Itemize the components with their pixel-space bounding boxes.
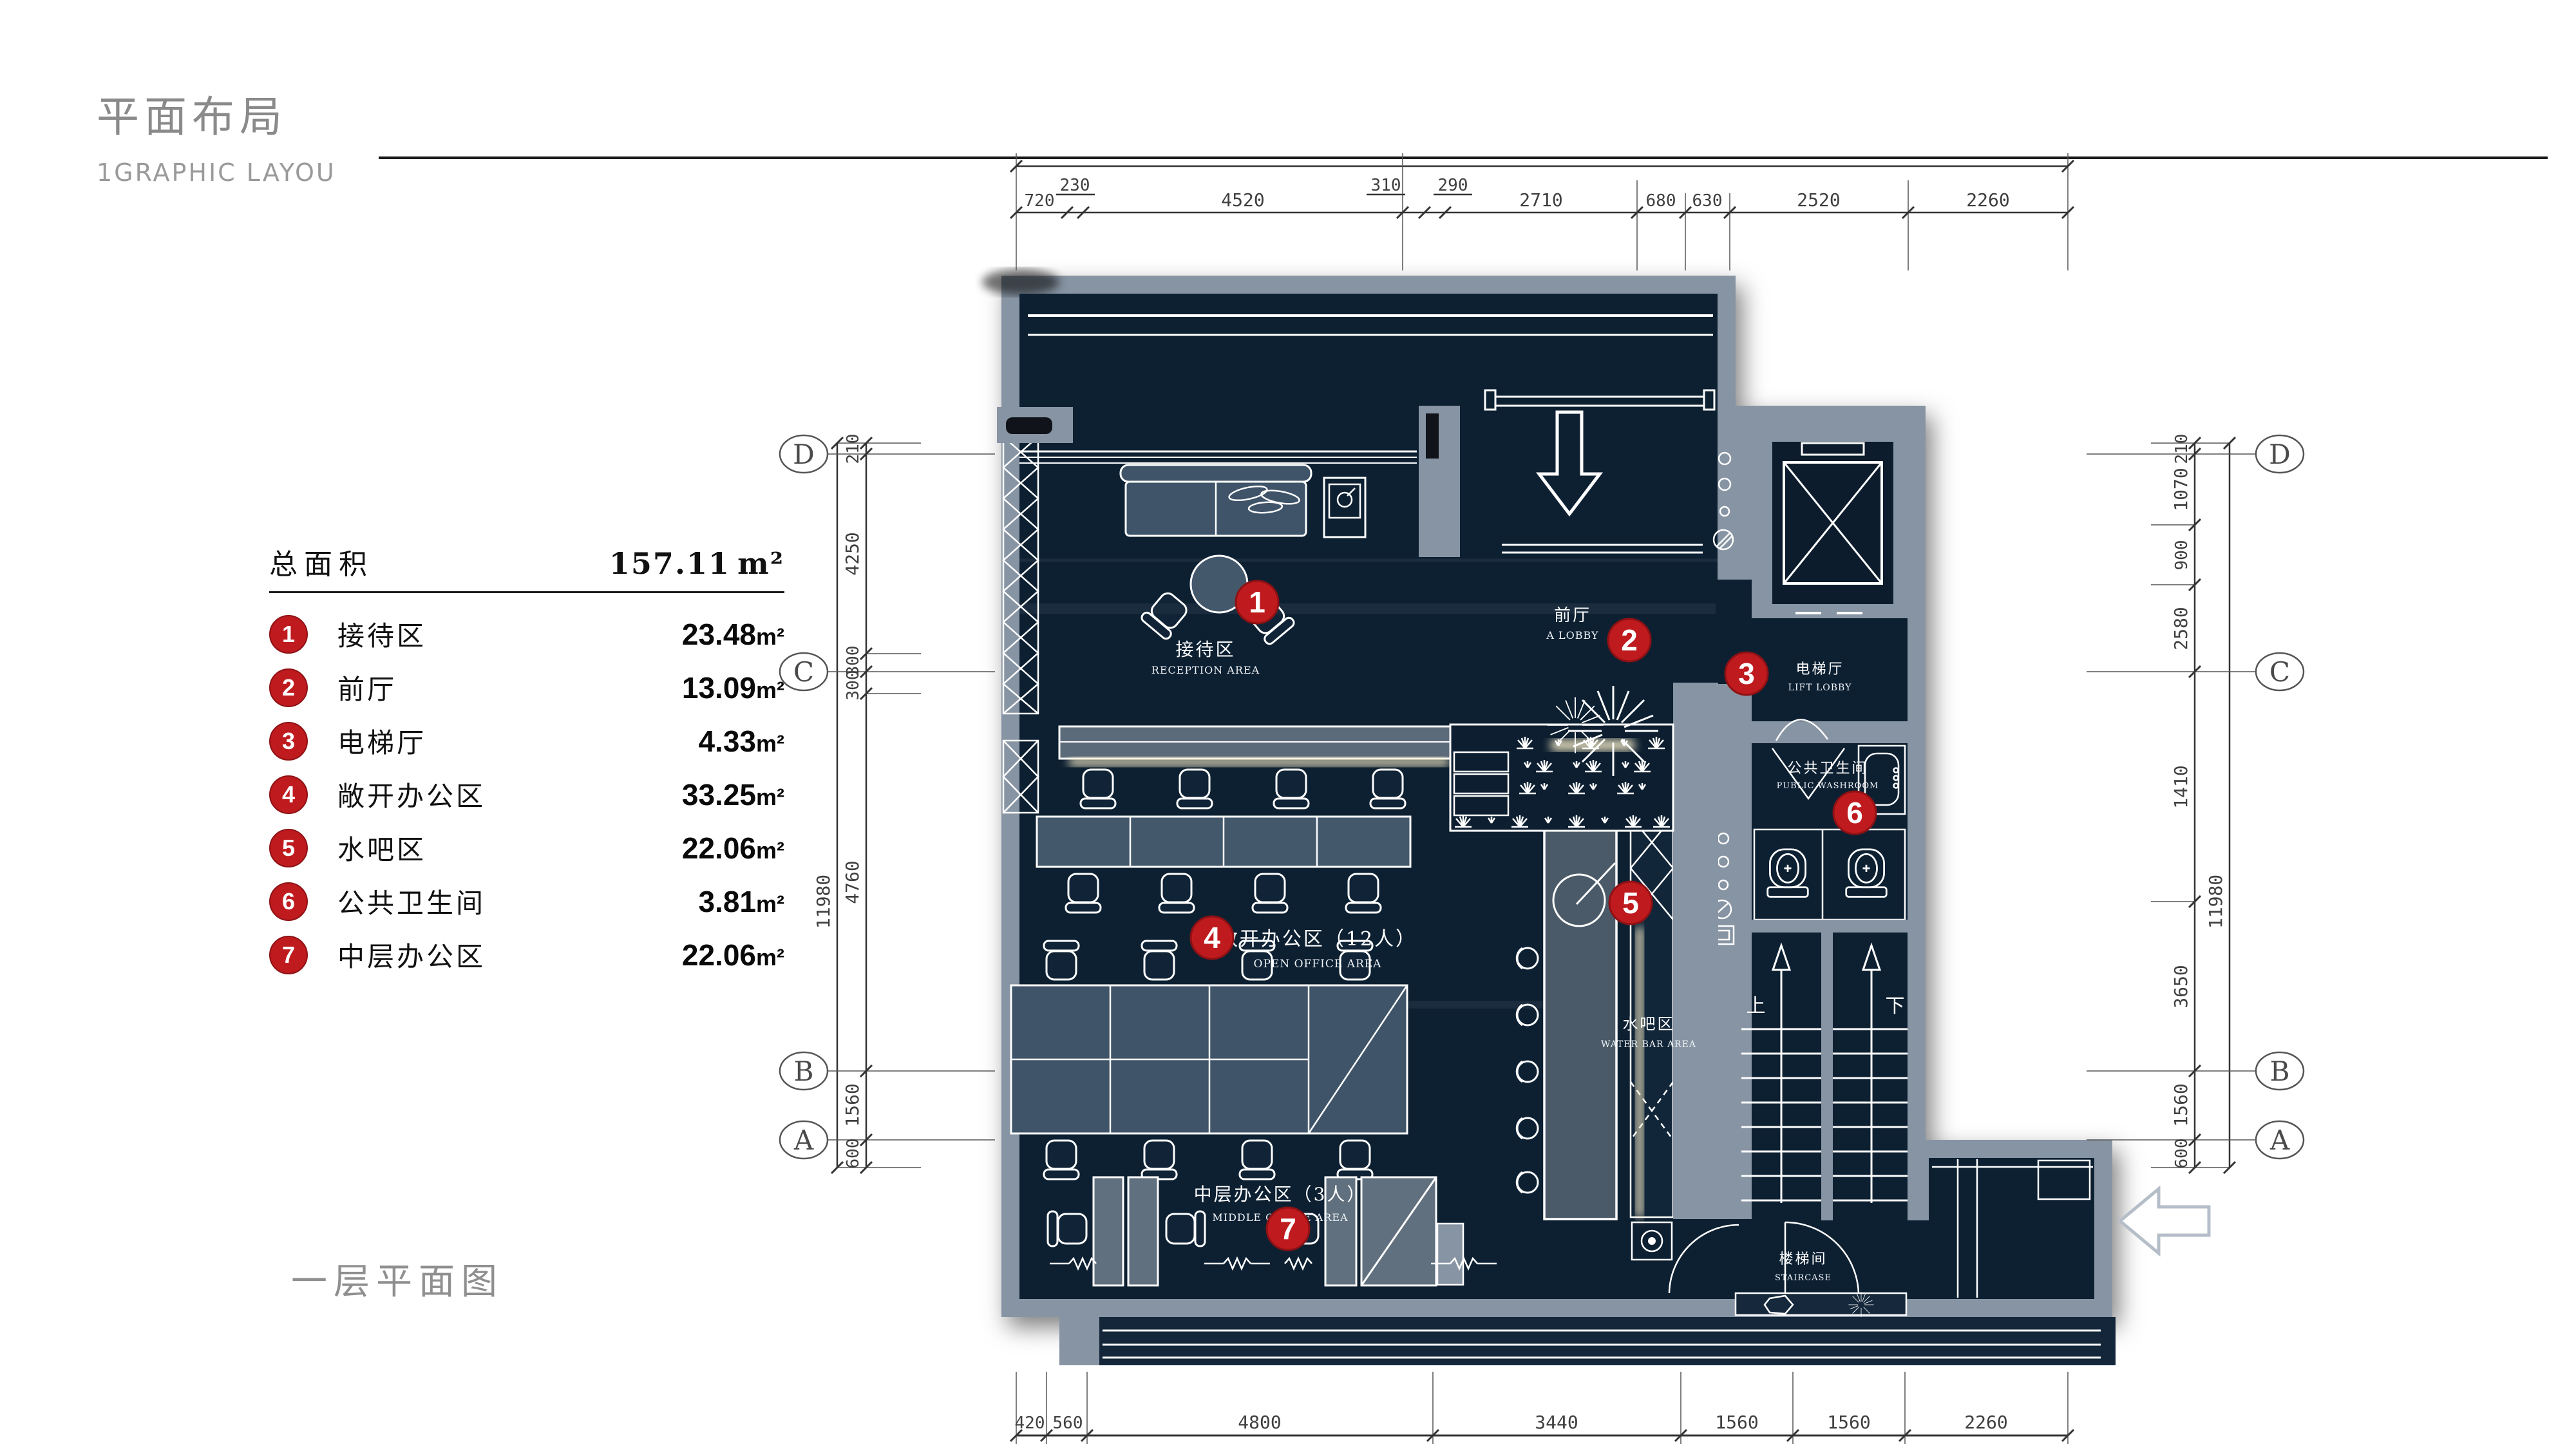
dim-bottom-4800: 4800 — [1238, 1412, 1281, 1433]
grid-left-D: D — [793, 439, 815, 470]
dim-bottom-3440: 3440 — [1535, 1412, 1578, 1433]
label-reception-zh: 接待区 — [1175, 639, 1235, 660]
stair-down-label: 下 — [1886, 995, 1907, 1018]
label-washroom-en: PUBLIC WASHROOM — [1777, 781, 1879, 791]
dim-left-4760: 4760 — [842, 860, 863, 904]
stair-up-label: 上 — [1747, 995, 1768, 1018]
dim-left-600: 600 — [844, 1139, 863, 1169]
dim-bottom-2260: 2260 — [1964, 1412, 2007, 1433]
dim-top-values: 720 230 4520 310 290 2710 680 630 2520 2… — [1025, 176, 2010, 211]
dim-left-1560: 1560 — [842, 1083, 863, 1126]
label-water-bar-en: WATER BAR AREA — [1601, 1039, 1696, 1050]
marker-1: 1 — [1236, 581, 1278, 623]
dim-top-720: 720 — [1025, 191, 1055, 211]
left-wall-slot — [997, 407, 1073, 443]
label-lobby-zh: 前厅 — [1554, 606, 1591, 625]
svg-text:3: 3 — [1738, 657, 1755, 690]
label-lobby-en: A LOBBY — [1546, 629, 1598, 641]
dim-left-total: 11980 — [813, 875, 834, 929]
svg-text:6: 6 — [1846, 796, 1863, 829]
svg-text:2: 2 — [1621, 623, 1638, 657]
grid-left-A: A — [793, 1124, 814, 1156]
grid-left-C: C — [793, 656, 814, 688]
label-open-office-zh: 敞开办公区（12人） — [1218, 928, 1417, 951]
dim-right-600: 600 — [2172, 1139, 2192, 1169]
dim-right-210: 210 — [2172, 434, 2192, 464]
grid-right-B: B — [2270, 1056, 2290, 1087]
label-staircase-en: STAIRCASE — [1775, 1273, 1832, 1283]
label-reception-en: RECEPTION AREA — [1151, 664, 1260, 676]
elevator — [1752, 424, 1908, 618]
dim-bottom-values: 420 560 4800 3440 1560 1560 2260 — [1015, 1412, 2008, 1433]
grid-right-C: C — [2269, 656, 2290, 688]
dim-bottom-420: 420 — [1015, 1414, 1045, 1433]
label-washroom-zh: 公共卫生间 — [1787, 761, 1868, 777]
dim-top-680: 680 — [1646, 191, 1676, 211]
dim-left-4250: 4250 — [842, 532, 863, 575]
grid-bubbles-right: D C B A — [2256, 435, 2304, 1159]
label-lift-lobby-en: LIFT LOBBY — [1788, 683, 1852, 693]
dim-top-230: 230 — [1060, 176, 1090, 195]
entrance-arrow — [2120, 1189, 2209, 1253]
dim-top-2710: 2710 — [1519, 189, 1562, 211]
marker-3: 3 — [1725, 652, 1768, 695]
marker-2: 2 — [1608, 619, 1651, 661]
marker-7: 7 — [1267, 1207, 1309, 1250]
dim-top-290: 290 — [1438, 176, 1468, 195]
label-open-office-en: OPEN OFFICE AREA — [1254, 958, 1382, 971]
dim-right-1070: 1070 — [2170, 468, 2192, 511]
marker-6: 6 — [1833, 791, 1876, 834]
dim-top-310: 310 — [1371, 176, 1401, 195]
dim-right-values: 210 1070 900 2580 1410 3650 1560 600 119… — [2170, 434, 2226, 1169]
marker-5: 5 — [1609, 882, 1652, 924]
svg-text:4: 4 — [1204, 921, 1220, 954]
dim-right-2580: 2580 — [2170, 607, 2192, 650]
marker-4: 4 — [1191, 916, 1233, 959]
dim-chain-top — [1010, 153, 2074, 270]
dim-bottom-560: 560 — [1053, 1414, 1083, 1433]
dim-right-1560: 1560 — [2170, 1083, 2192, 1126]
grid-left-B: B — [794, 1056, 814, 1087]
bar-wall — [1673, 683, 1718, 1219]
dim-bottom-1560a: 1560 — [1715, 1412, 1758, 1433]
dim-top-2520: 2520 — [1797, 189, 1840, 211]
dim-top-630: 630 — [1692, 191, 1723, 211]
svg-text:7: 7 — [1280, 1212, 1296, 1245]
dim-right-3650: 3650 — [2170, 965, 2192, 1008]
label-lift-lobby-zh: 电梯厅 — [1795, 661, 1844, 677]
label-water-bar-zh: 水吧区 — [1623, 1015, 1675, 1033]
label-middle-office-zh: 中层办公区（3人） — [1194, 1184, 1367, 1205]
dim-top-4520: 4520 — [1221, 189, 1264, 211]
grid-right-A: A — [2269, 1124, 2290, 1156]
svg-text:1: 1 — [1249, 585, 1265, 619]
dim-left-300b: 300 — [844, 670, 863, 701]
dim-left-210: 210 — [844, 434, 863, 464]
dim-chain-bottom — [1010, 1372, 2074, 1444]
label-staircase-zh: 楼梯间 — [1779, 1251, 1827, 1267]
dim-bottom-1560b: 1560 — [1827, 1412, 1870, 1433]
floor-plan: 上 下 — [0, 0, 2576, 1449]
dim-right-1410: 1410 — [2170, 765, 2192, 808]
bottom-steps — [1059, 1317, 2116, 1365]
svg-text:5: 5 — [1622, 886, 1639, 920]
dim-right-total: 11980 — [2205, 875, 2226, 929]
dim-right-900: 900 — [2172, 540, 2192, 571]
dim-top-2260: 2260 — [1966, 189, 2009, 211]
grid-right-D: D — [2269, 439, 2291, 470]
grid-bubbles-left: D C B A — [780, 435, 828, 1159]
